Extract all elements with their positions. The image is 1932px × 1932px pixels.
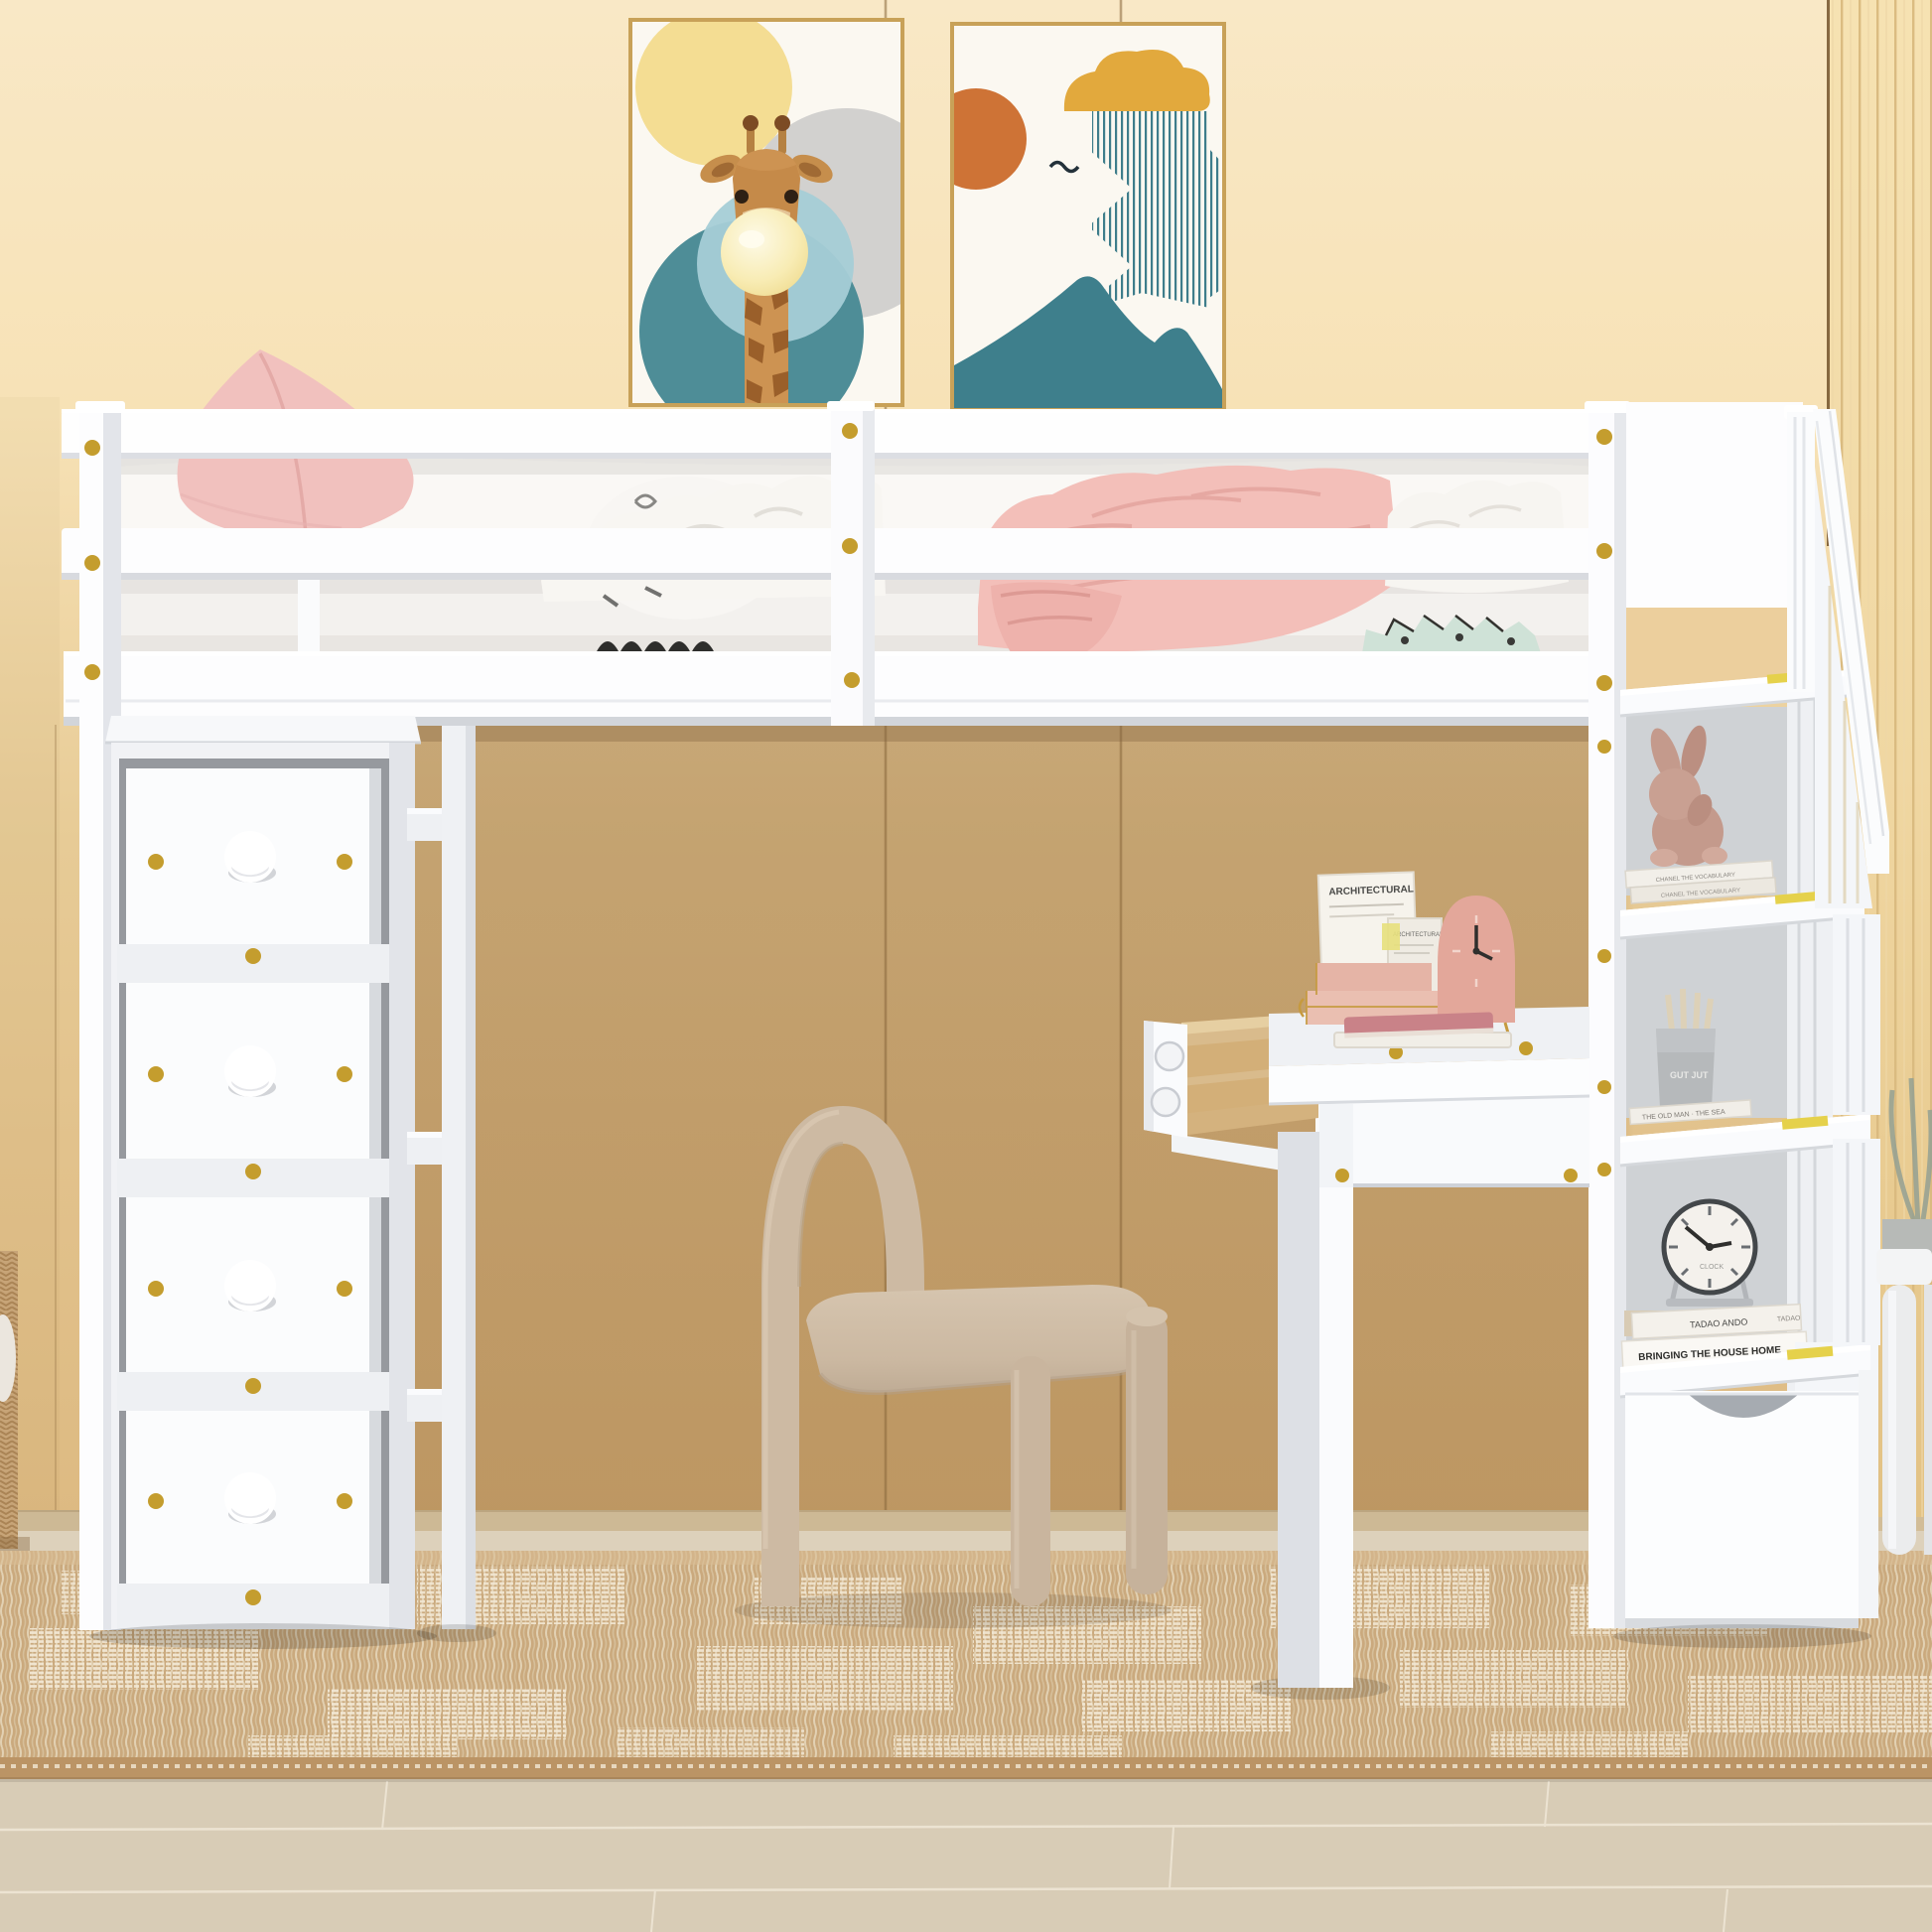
svg-text:CLOCK: CLOCK	[1700, 1264, 1724, 1271]
svg-text:GUT JUT: GUT JUT	[1670, 1070, 1709, 1080]
svg-text:TADAO: TADAO	[1777, 1315, 1801, 1323]
svg-text:ARCHITECTURAL: ARCHITECTURAL	[1393, 932, 1444, 938]
